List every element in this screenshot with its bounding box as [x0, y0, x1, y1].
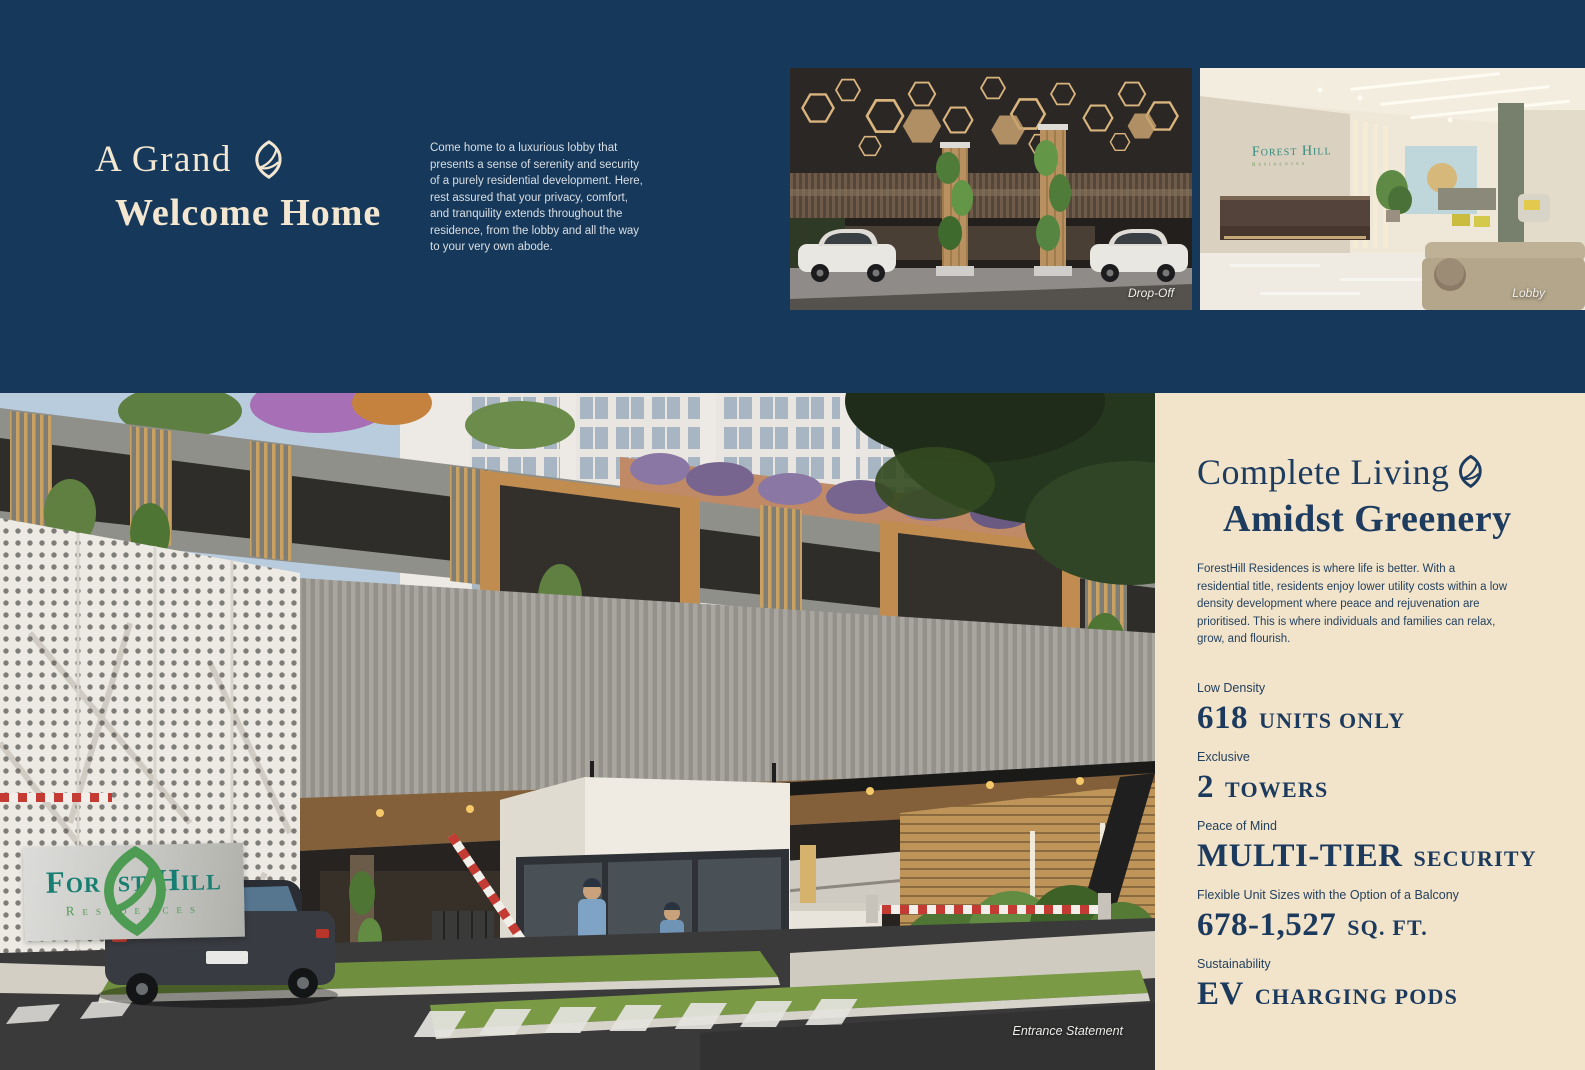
feature-list: Low Density 618 UNITS ONLY Exclusive 2 T…: [1197, 681, 1555, 1013]
logo-leaf-icon: [102, 873, 117, 890]
reception-desk: [1220, 196, 1370, 240]
feature-label: Peace of Mind: [1197, 819, 1555, 833]
foreground-sofa: [1422, 242, 1585, 310]
feature-label: Exclusive: [1197, 750, 1555, 764]
feature-label: Flexible Unit Sizes with the Option of a…: [1197, 888, 1555, 902]
entrance-caption: Entrance Statement: [1013, 1024, 1123, 1038]
feature-value-rest: SQ. FT.: [1347, 915, 1428, 940]
lobby-illustration: [1200, 68, 1585, 310]
entrance-illustration: [0, 393, 1155, 1070]
panel-title-line1-wrap: Complete Living: [1197, 449, 1555, 495]
feature-value-lead: EV: [1197, 976, 1244, 1012]
dropoff-photo: Drop-Off: [790, 68, 1192, 310]
feature-security: Peace of Mind MULTI-TIER SECURITY: [1197, 819, 1555, 875]
feature-value: EV CHARGING PODS: [1197, 976, 1555, 1013]
lobby-wall-sign: Forest Hill Residences: [1252, 143, 1332, 167]
brochure-page: A Grand Welcome Home Come home to a luxu…: [0, 0, 1585, 1070]
entrance-photo: For st Hill Residences Entrance Statemen…: [0, 393, 1155, 1070]
feature-low-density: Low Density 618 UNITS ONLY: [1197, 681, 1555, 737]
feature-value: 678-1,527 SQ. FT.: [1197, 907, 1555, 944]
panel-title-line1: Complete Living: [1197, 449, 1449, 495]
feature-value: 2 TOWERS: [1197, 769, 1555, 806]
hero-title: A Grand Welcome Home: [95, 138, 381, 235]
info-panel: Complete Living Amidst Greenery ForestHi…: [1155, 393, 1585, 1070]
lobby-sign-brand: Forest Hill: [1252, 143, 1332, 160]
feature-value: MULTI-TIER SECURITY: [1197, 838, 1555, 875]
feature-value-rest: UNITS ONLY: [1259, 708, 1405, 733]
leaf-icon: [248, 139, 288, 181]
dropoff-illustration: [790, 68, 1192, 310]
hero-title-line2: Welcome Home: [115, 191, 381, 235]
panel-title-line2: Amidst Greenery: [1197, 495, 1555, 543]
feature-value: 618 UNITS ONLY: [1197, 700, 1555, 737]
hero-title-line1: A Grand: [95, 138, 232, 181]
foresthill-logo-plaque: For st Hill Residences: [23, 843, 245, 942]
feature-value-lead: 678-1,527: [1197, 907, 1336, 943]
feature-value-lead: 618: [1197, 700, 1248, 736]
panel-title: Complete Living Amidst Greenery: [1197, 449, 1555, 543]
lobby-photo: Forest Hill Residences Lobby: [1200, 68, 1585, 310]
foresthill-logo: For st Hill: [46, 864, 222, 898]
hero-title-line1-wrap: A Grand: [95, 138, 381, 181]
feature-value-lead: MULTI-TIER: [1197, 838, 1403, 874]
lobby-caption: Lobby: [1512, 286, 1545, 300]
feature-label: Low Density: [1197, 681, 1555, 695]
feature-value-rest: TOWERS: [1225, 777, 1328, 802]
feature-unit-sizes: Flexible Unit Sizes with the Option of a…: [1197, 888, 1555, 944]
feature-value-rest: CHARGING PODS: [1255, 984, 1458, 1009]
leaf-icon: [1453, 454, 1487, 490]
feature-value-lead: 2: [1197, 769, 1214, 805]
dropoff-caption: Drop-Off: [1128, 286, 1174, 300]
feature-label: Sustainability: [1197, 957, 1555, 971]
feature-exclusive: Exclusive 2 TOWERS: [1197, 750, 1555, 806]
hero-paragraph: Come home to a luxurious lobby that pres…: [430, 140, 648, 256]
feature-ev: Sustainability EV CHARGING PODS: [1197, 957, 1555, 1013]
panel-paragraph: ForestHill Residences is where life is b…: [1197, 561, 1509, 649]
feature-value-rest: SECURITY: [1414, 846, 1537, 871]
